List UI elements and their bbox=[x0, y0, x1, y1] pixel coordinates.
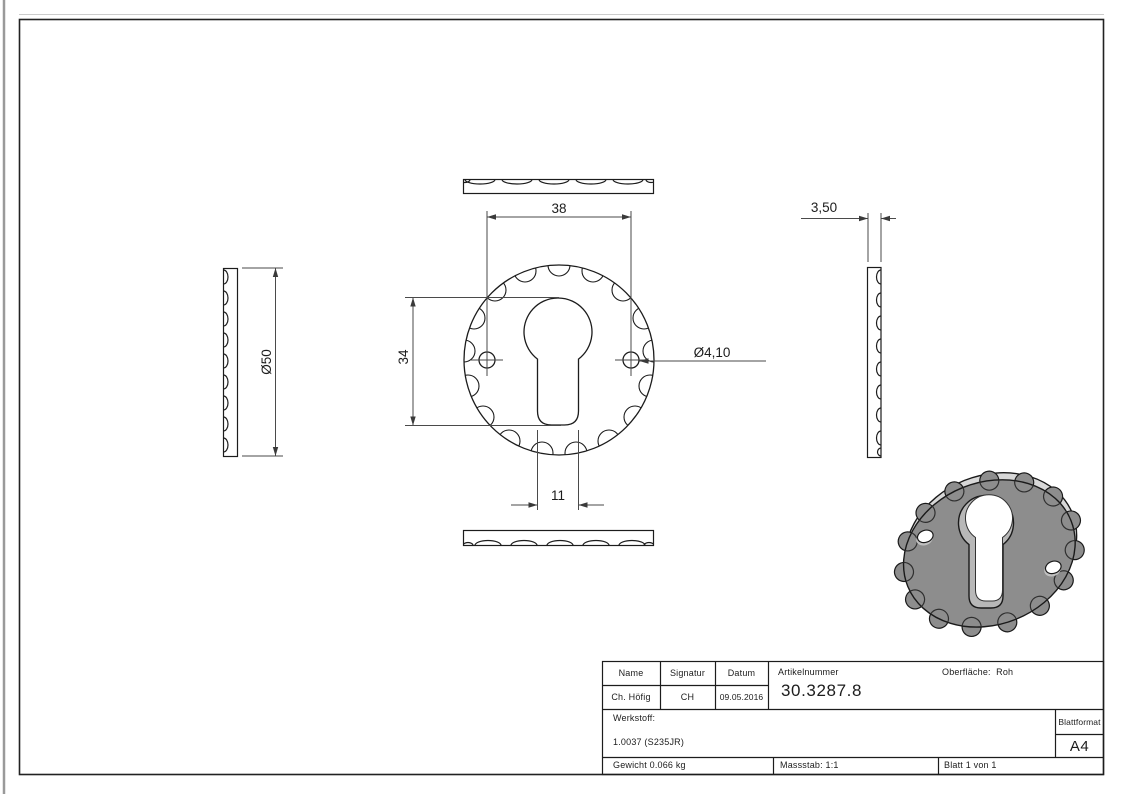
titleblock-material-label: Werkstoff: bbox=[613, 714, 655, 723]
titleblock-date-label: Datum bbox=[715, 662, 768, 685]
left-side-view bbox=[219, 269, 238, 457]
titleblock-article-number: 30.3287.8 bbox=[781, 682, 862, 699]
titleblock-sheet-format-label: Blattformat bbox=[1056, 710, 1103, 734]
bottom-side-view bbox=[463, 531, 654, 551]
titleblock-sheet: Blatt 1 von 1 bbox=[944, 761, 997, 770]
titleblock-surface: Oberfläche: Roh bbox=[942, 668, 1013, 677]
dim-hole-diameter: Ø4,10 bbox=[694, 345, 731, 360]
dimensions bbox=[242, 211, 896, 510]
dim-slot-width: 11 bbox=[551, 488, 565, 503]
titleblock-article-label: Artikelnummer bbox=[778, 668, 839, 677]
dim-outer-diameter: Ø50 bbox=[259, 349, 274, 375]
dim-thickness: 3,50 bbox=[811, 200, 837, 215]
titleblock-scale: Massstab: 1:1 bbox=[780, 761, 839, 770]
front-view bbox=[453, 254, 665, 464]
front-scallops bbox=[453, 254, 665, 464]
titleblock-weight: Gewicht 0.066 kg bbox=[613, 761, 686, 770]
page-edge bbox=[4, 0, 1104, 794]
top-side-view bbox=[460, 175, 656, 194]
surface-label: Oberfläche: bbox=[942, 667, 991, 677]
titleblock-date-value: 09.05.2016 bbox=[715, 686, 768, 709]
titleblock-material-value: 1.0037 (S235JR) bbox=[613, 738, 684, 747]
surface-value: Roh bbox=[996, 667, 1013, 677]
titleblock-signature-label: Signatur bbox=[660, 662, 715, 685]
titleblock-signature-value: CH bbox=[660, 686, 715, 709]
titleblock-name-value: Ch. Höfig bbox=[602, 686, 660, 709]
right-side-view bbox=[868, 268, 886, 458]
titleblock-name-label: Name bbox=[602, 662, 660, 685]
isometric-view bbox=[871, 443, 1110, 664]
keyhole-cutout bbox=[524, 298, 592, 425]
titleblock-sheet-format-value: A4 bbox=[1056, 735, 1103, 757]
dimension-arrows bbox=[273, 214, 890, 507]
dim-cutout-height: 34 bbox=[396, 349, 411, 365]
dim-hole-spacing: 38 bbox=[551, 201, 566, 216]
drawing-sheet: 38 3,50 Ø4,10 11 Ø50 34 bbox=[0, 0, 1123, 794]
dimension-labels: 38 3,50 Ø4,10 11 Ø50 34 bbox=[259, 200, 837, 503]
